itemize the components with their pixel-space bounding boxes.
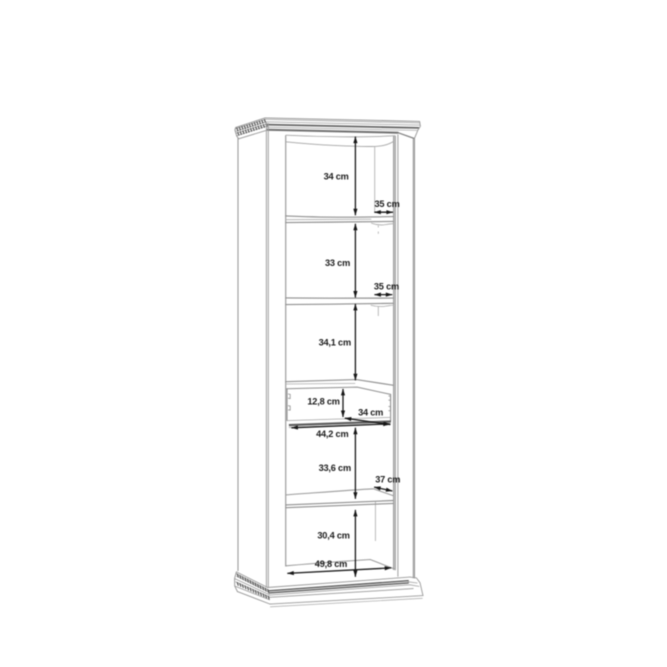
svg-text:12,8 cm: 12,8 cm — [307, 397, 339, 407]
svg-text:37 cm: 37 cm — [375, 474, 400, 484]
svg-text:34 cm: 34 cm — [358, 407, 383, 417]
svg-text:33 cm: 33 cm — [325, 258, 350, 268]
svg-text:35 cm: 35 cm — [374, 281, 399, 291]
svg-text:30,4 cm: 30,4 cm — [317, 530, 349, 540]
svg-text:44,2 cm: 44,2 cm — [316, 429, 348, 439]
svg-text:33,6 cm: 33,6 cm — [319, 463, 351, 473]
svg-text:34,1 cm: 34,1 cm — [319, 338, 351, 348]
svg-text:49,8 cm: 49,8 cm — [315, 559, 347, 569]
svg-text:35 cm: 35 cm — [375, 199, 400, 209]
svg-text:34 cm: 34 cm — [324, 171, 349, 181]
